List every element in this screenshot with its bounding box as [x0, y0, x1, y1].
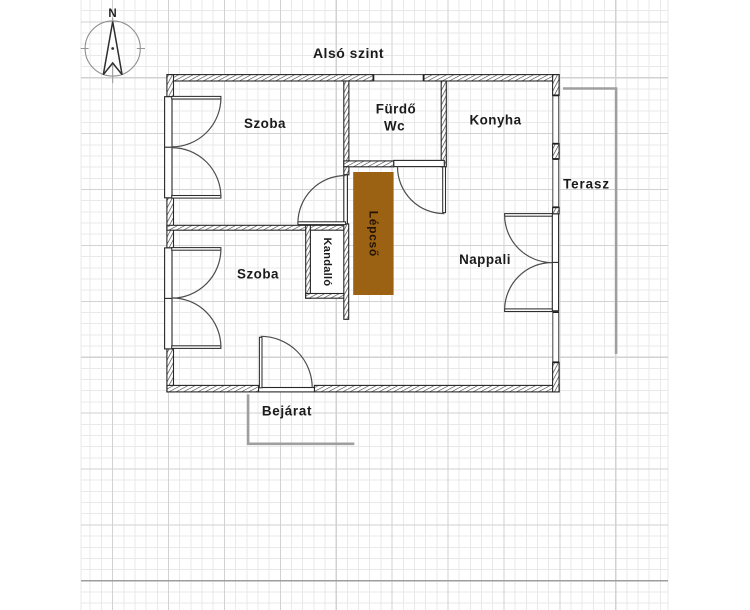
- svg-text:N: N: [108, 8, 116, 20]
- svg-text:Lépcső: Lépcső: [367, 211, 381, 257]
- svg-text:Alsó szint: Alsó szint: [313, 45, 384, 61]
- svg-text:Szoba: Szoba: [244, 116, 286, 131]
- svg-text:Konyha: Konyha: [469, 112, 521, 127]
- svg-text:Szoba: Szoba: [237, 266, 279, 281]
- svg-text:Fürdő: Fürdő: [376, 101, 416, 116]
- svg-text:Bejárat: Bejárat: [262, 404, 312, 419]
- svg-text:Nappali: Nappali: [459, 252, 511, 267]
- svg-text:Kandalló: Kandalló: [321, 238, 333, 287]
- svg-text:Terasz: Terasz: [563, 176, 610, 191]
- svg-text:Wc: Wc: [384, 119, 405, 134]
